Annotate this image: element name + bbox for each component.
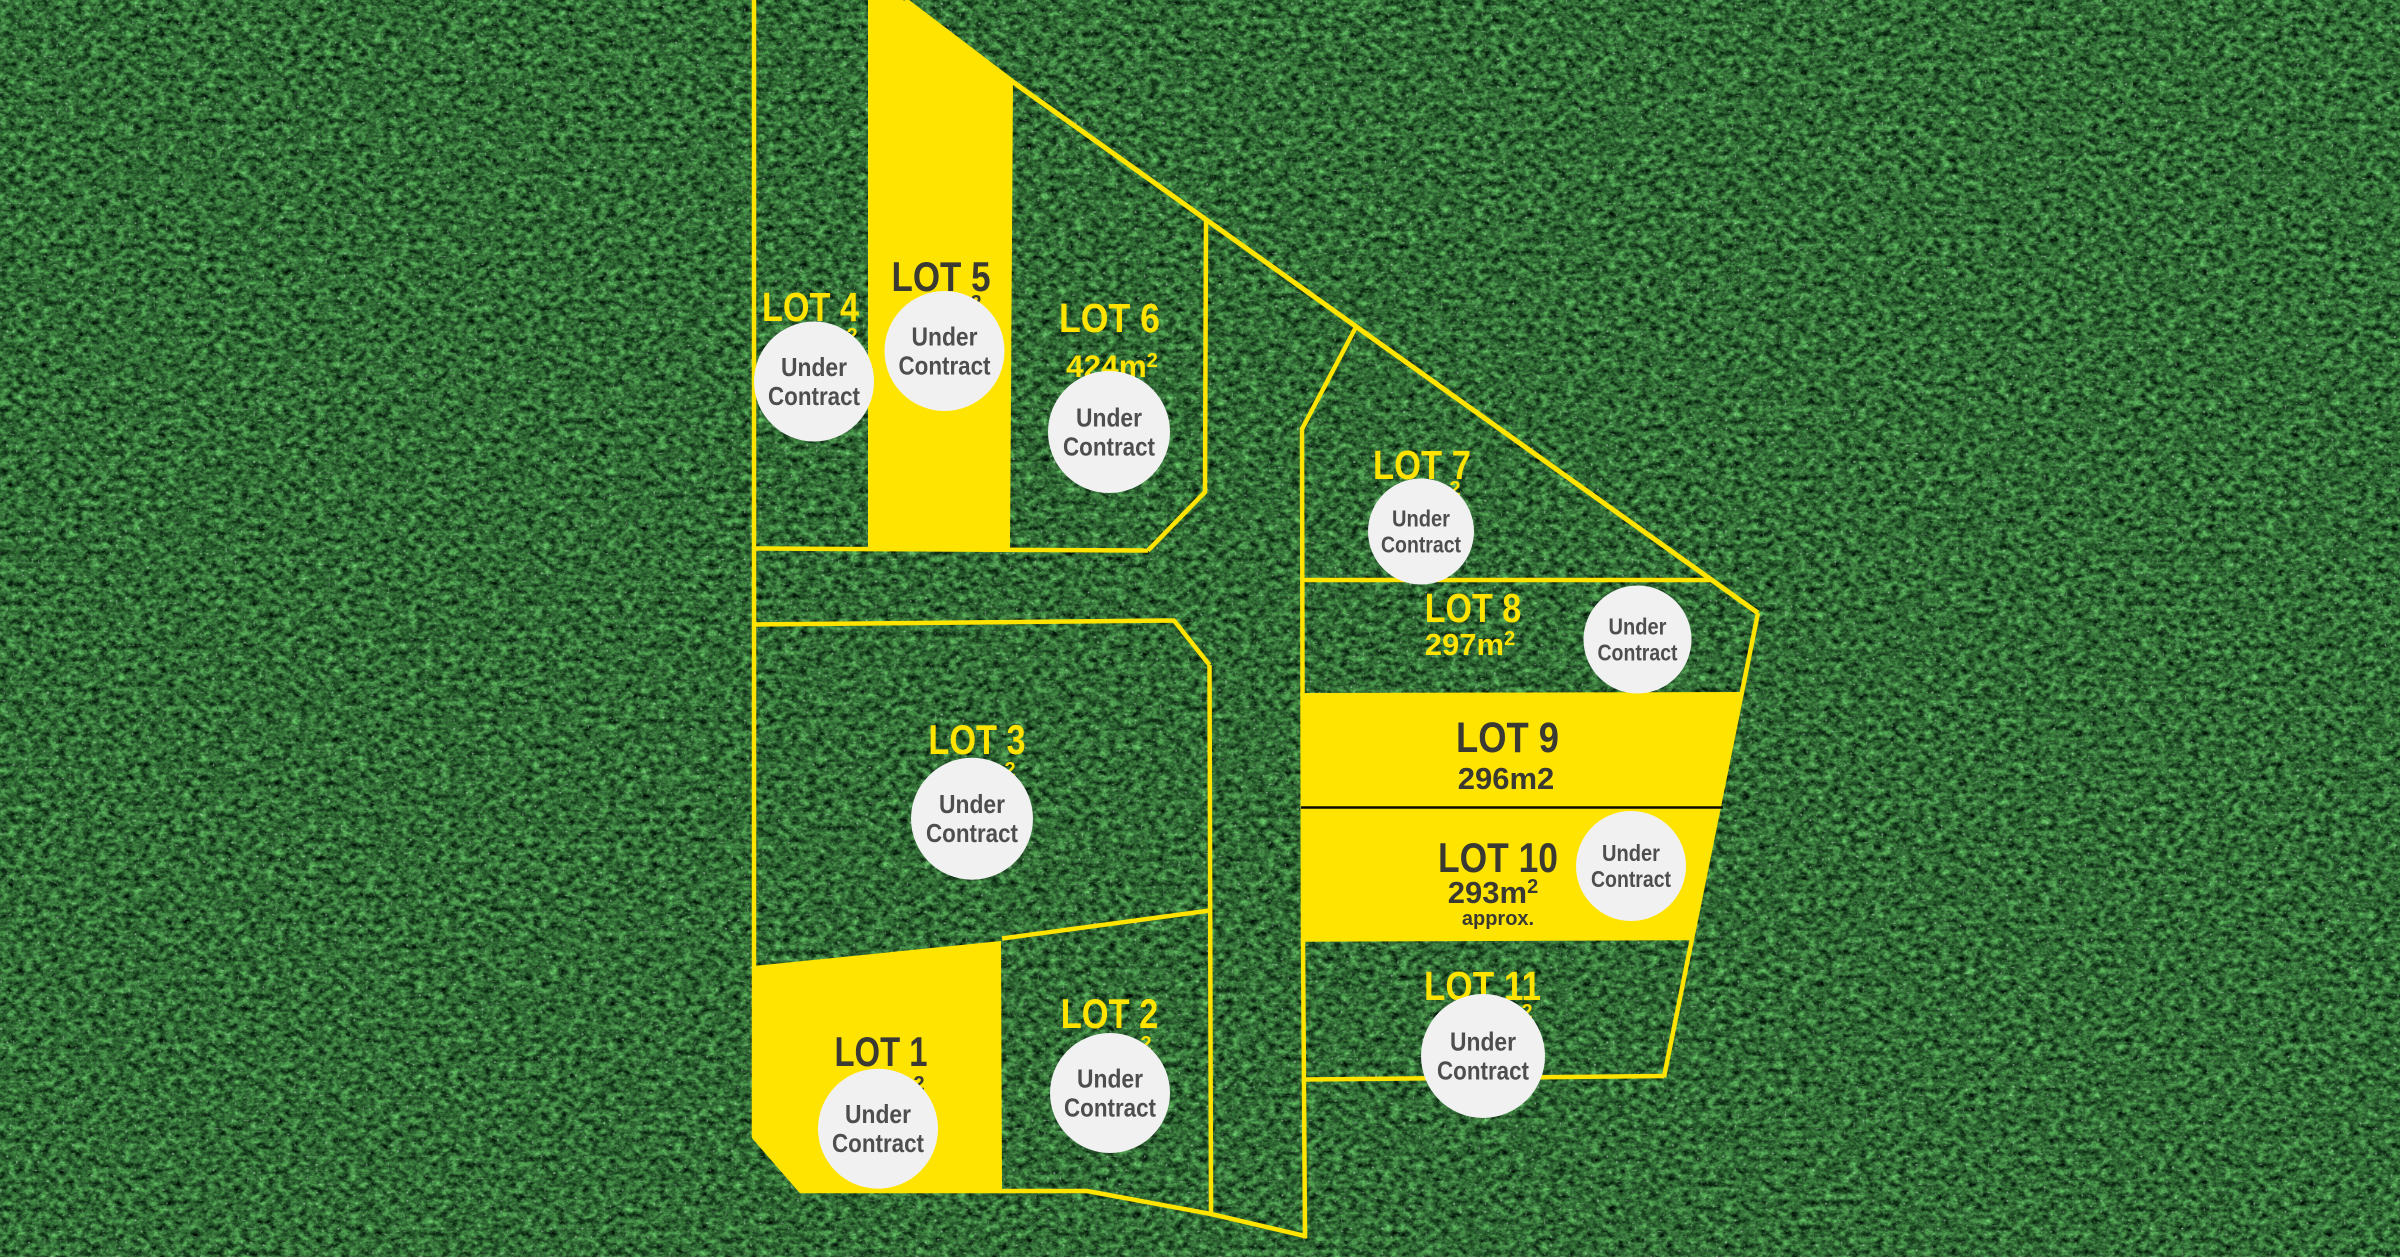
svg-text:LOT 2: LOT 2 [1061, 990, 1159, 1037]
svg-text:Contract: Contract [832, 1128, 924, 1158]
svg-text:Contract: Contract [1591, 866, 1671, 892]
svg-text:Contract: Contract [768, 381, 860, 411]
svg-text:Under: Under [939, 789, 1005, 819]
svg-text:Under: Under [1076, 403, 1142, 433]
svg-text:LOT 9: LOT 9 [1456, 714, 1559, 762]
svg-text:Contract: Contract [899, 351, 991, 381]
svg-text:Under: Under [912, 322, 978, 352]
svg-text:297m2: 297m2 [1425, 627, 1515, 662]
svg-text:Contract: Contract [1598, 640, 1678, 666]
svg-text:Under: Under [1392, 506, 1450, 532]
svg-text:293m2: 293m2 [1448, 875, 1538, 910]
svg-text:296m2: 296m2 [1458, 761, 1555, 796]
svg-text:Contract: Contract [1063, 432, 1155, 462]
svg-text:Contract: Contract [1437, 1056, 1529, 1086]
svg-text:LOT 3: LOT 3 [928, 716, 1025, 763]
svg-text:Under: Under [1077, 1064, 1143, 1094]
svg-text:LOT 8: LOT 8 [1425, 585, 1522, 631]
svg-text:Contract: Contract [1064, 1093, 1156, 1123]
svg-text:approx.: approx. [1462, 908, 1534, 930]
svg-text:Contract: Contract [926, 818, 1018, 848]
svg-text:Contract: Contract [1381, 532, 1461, 558]
svg-text:LOT 10: LOT 10 [1438, 834, 1558, 881]
svg-text:Under: Under [1609, 614, 1667, 640]
svg-text:Under: Under [845, 1099, 911, 1129]
svg-text:LOT 1: LOT 1 [835, 1028, 928, 1075]
svg-text:Under: Under [781, 352, 847, 382]
svg-text:Under: Under [1450, 1027, 1516, 1057]
svg-text:Under: Under [1602, 840, 1660, 866]
svg-text:LOT 6: LOT 6 [1059, 295, 1160, 341]
